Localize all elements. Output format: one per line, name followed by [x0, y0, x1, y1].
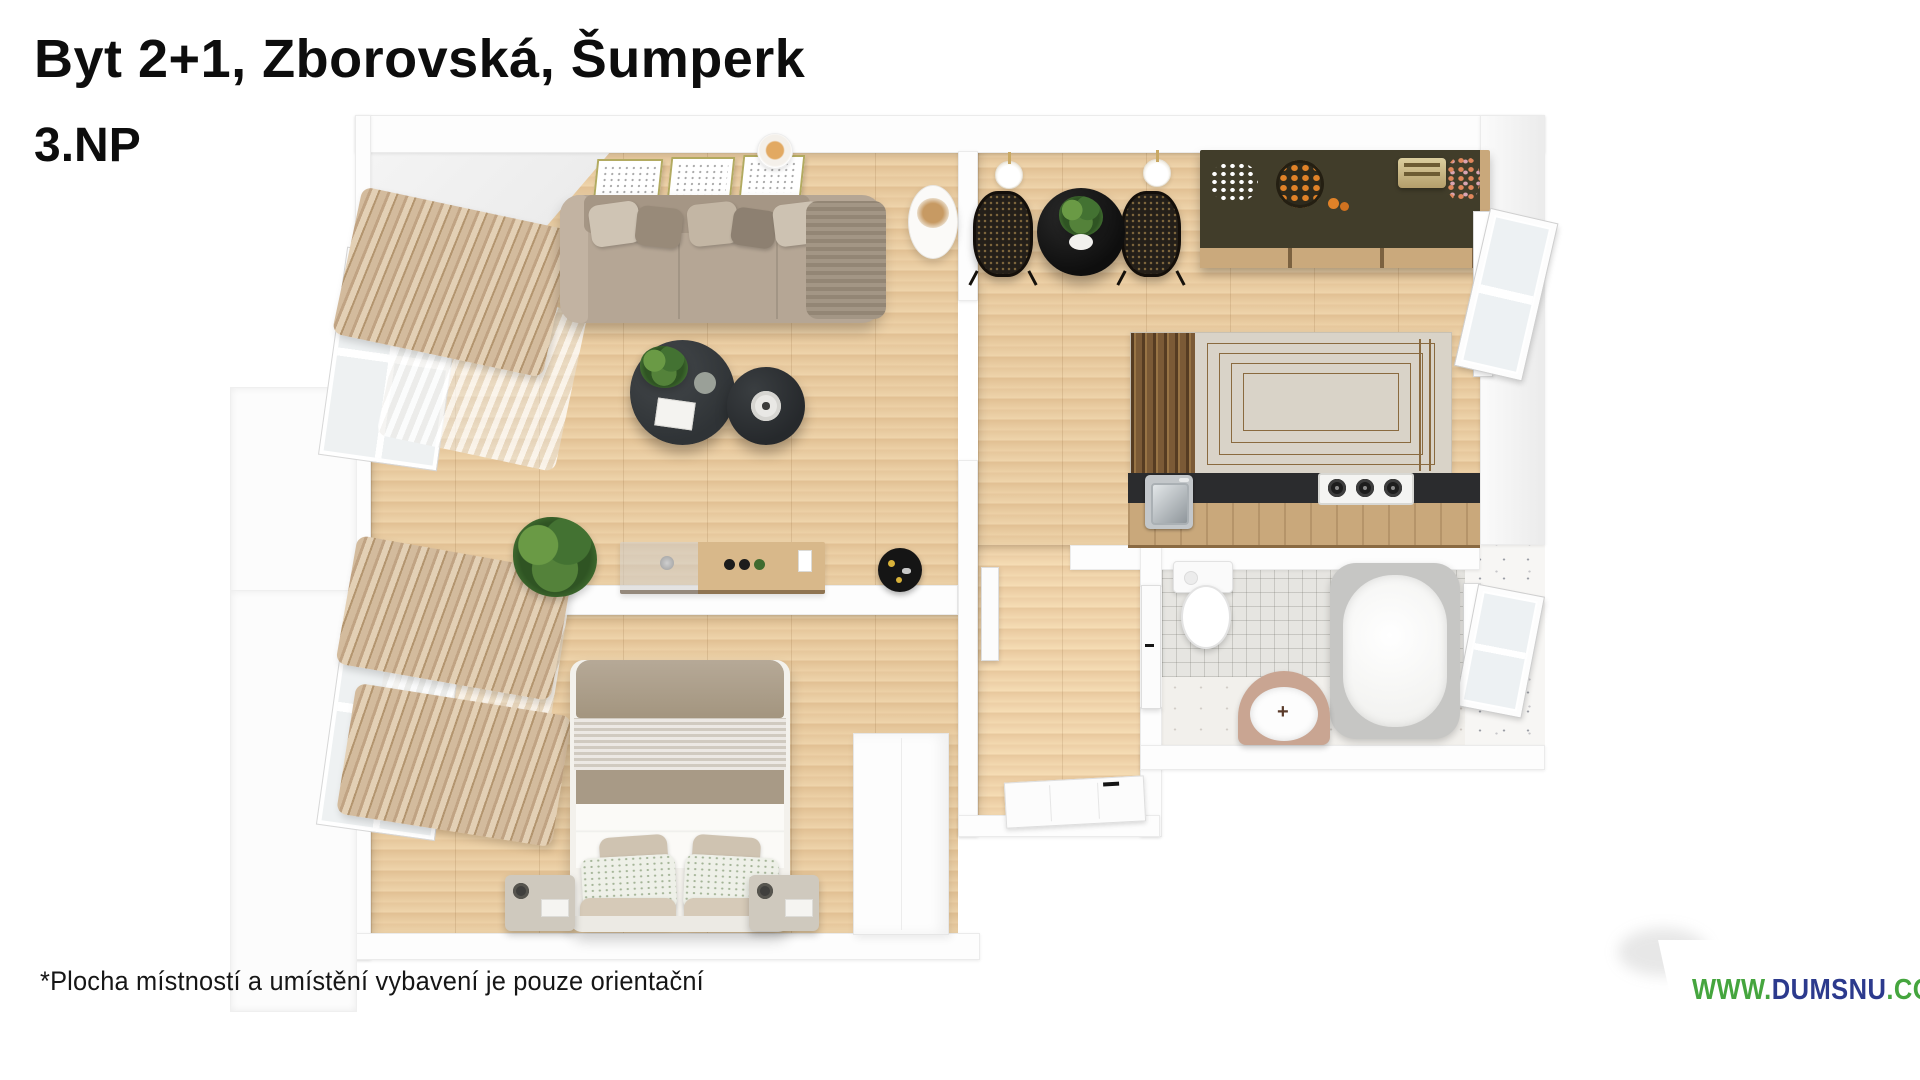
bed-duvet-band — [576, 770, 784, 804]
console-plant-dot — [754, 559, 765, 570]
wardrobe — [853, 733, 949, 935]
side-lamp — [908, 185, 958, 259]
wall-divider-lower — [958, 460, 978, 837]
console-decor-snowflake — [660, 556, 674, 570]
sofa-throw-blanket — [806, 201, 886, 319]
dining-chair-right — [1121, 191, 1181, 277]
living-room-plant — [513, 517, 597, 597]
bed-duvet-top — [576, 660, 784, 718]
bathtub-interior — [1343, 575, 1447, 727]
mat-gold-decor-1 — [888, 560, 895, 567]
bathroom-door-handle — [1145, 644, 1154, 647]
sofa-pillow-4 — [730, 206, 779, 250]
kitchen-counter — [1128, 473, 1480, 545]
sideboard-toaster — [1398, 158, 1446, 188]
entry-door-seam-2 — [1097, 783, 1100, 819]
floor-label: 3.NP — [34, 118, 141, 173]
kitchen-sideboard — [1200, 150, 1490, 268]
coffee-table-large — [630, 340, 735, 445]
bed-knit-throw — [574, 718, 786, 770]
bathtub — [1330, 563, 1460, 739]
watermark-domain: DUMSNU — [1772, 974, 1887, 1007]
sofa-pillow-1 — [587, 200, 642, 249]
mat-gold-decor-3 — [896, 577, 902, 583]
side-lamp-shade — [917, 198, 949, 228]
sink-basin — [1151, 483, 1189, 525]
rug-vertical-accent-1 — [1419, 339, 1421, 471]
nightstand-right-book — [785, 899, 813, 917]
sideboard-orange-2 — [1340, 202, 1349, 211]
watermark-tld: .COM — [1886, 974, 1920, 1007]
page-title: Byt 2+1, Zborovská, Šumperk — [34, 28, 805, 90]
sideboard-front — [1200, 248, 1480, 268]
watermark-text: WWW.DUMSNU.COM — [1692, 940, 1920, 1040]
wall-bathroom-bottom — [1140, 745, 1545, 770]
sideboard-fruit-bowl — [1276, 160, 1324, 208]
nightstand-left-lamp — [513, 883, 529, 899]
kitchen-open-window — [1473, 211, 1553, 381]
nightstand-right — [749, 875, 819, 931]
wall-top — [355, 115, 1545, 153]
toilet-bowl — [1181, 585, 1231, 649]
kitchen-rug — [1130, 332, 1452, 479]
page: Byt 2+1, Zborovská, Šumperk 3.NP — [0, 0, 1920, 1080]
coffee-table-bowl — [751, 391, 781, 421]
nightstand-left — [505, 875, 575, 931]
kitchen-hall-door — [981, 567, 999, 661]
hob-burner-1 — [1328, 479, 1346, 497]
entry-door-handle — [1103, 782, 1119, 787]
coffee-table-pot — [694, 372, 716, 394]
wall-bedroom-bottom — [355, 933, 980, 960]
bathroom-door — [1141, 585, 1161, 709]
console-vase — [798, 550, 812, 572]
watermark-banner: WWW.DUMSNU.COM — [1652, 940, 1920, 1040]
gas-hob — [1318, 473, 1414, 505]
wall-lamp-left — [995, 161, 1023, 189]
rug-vertical-accent-2 — [1429, 339, 1431, 471]
sideboard-flowers-right — [1446, 156, 1480, 202]
sink-faucet — [1179, 478, 1189, 482]
round-black-mat — [878, 548, 922, 592]
hob-burner-2 — [1356, 479, 1374, 497]
picture-art-2 — [673, 163, 728, 195]
washbasin-bowl — [1250, 687, 1318, 741]
dining-table — [1037, 188, 1125, 276]
wall-lamp-right — [1143, 159, 1171, 187]
hob-burner-3 — [1384, 479, 1402, 497]
nightstand-left-book — [541, 899, 569, 917]
wall-hall-right-upper — [1140, 545, 1162, 587]
sideboard-orange-1 — [1328, 198, 1339, 209]
entry-door-seam-1 — [1049, 785, 1052, 821]
watermark-www: WWW. — [1692, 974, 1772, 1007]
coffee-table-small — [727, 367, 805, 445]
mat-gold-decor-2 — [902, 568, 911, 574]
bathroom-window-glass — [1464, 593, 1536, 709]
disclaimer-note: *Plocha místností a umístění vybavení je… — [40, 966, 704, 997]
dining-table-plant — [1059, 196, 1103, 236]
coffee-table-book — [654, 397, 696, 430]
picture-art-1 — [599, 165, 656, 197]
sofa — [560, 195, 882, 323]
coffee-table-plant — [640, 346, 688, 388]
entry-door — [1004, 775, 1146, 828]
console-socket-2 — [739, 559, 750, 570]
wall-candle — [757, 133, 793, 169]
sideboard-white-flowers — [1210, 162, 1258, 202]
dining-chair-left — [973, 191, 1033, 277]
console-socket-1 — [724, 559, 735, 570]
bathroom-open-window — [1463, 583, 1543, 713]
nightstand-right-lamp — [757, 883, 773, 899]
sofa-seam-2 — [776, 231, 778, 319]
floorplan-render — [355, 115, 1545, 960]
toilet — [1173, 561, 1253, 653]
rug-line-4 — [1243, 373, 1399, 431]
dining-table-pot — [1069, 234, 1093, 250]
kitchen-sink — [1145, 475, 1193, 529]
rug-brown-band — [1131, 333, 1195, 478]
console-shelf — [620, 542, 825, 594]
sofa-pillow-2 — [634, 205, 684, 250]
